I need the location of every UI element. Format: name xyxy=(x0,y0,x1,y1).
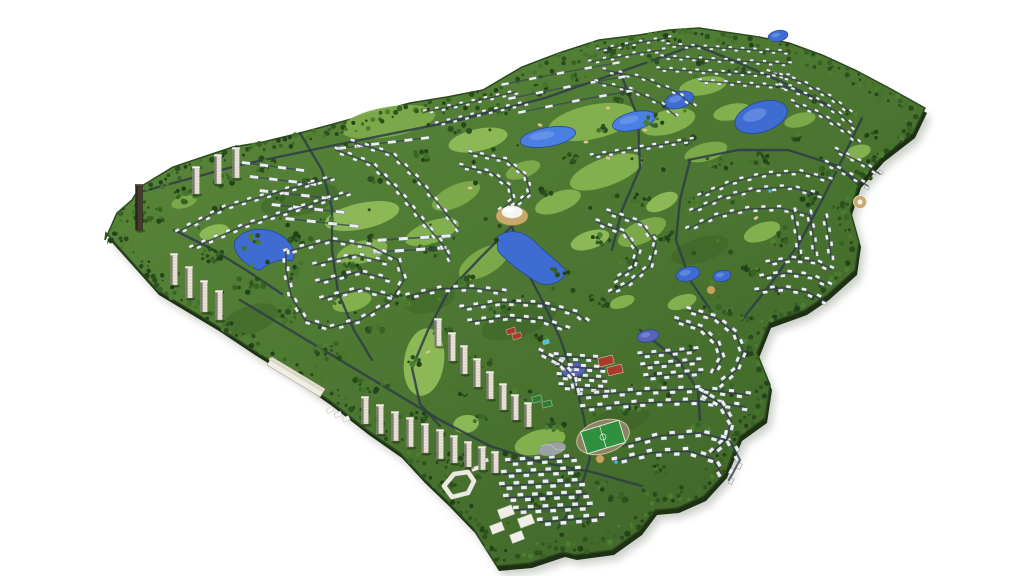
masterplan-stage xyxy=(0,0,1024,576)
masterplan-render xyxy=(0,0,1024,576)
